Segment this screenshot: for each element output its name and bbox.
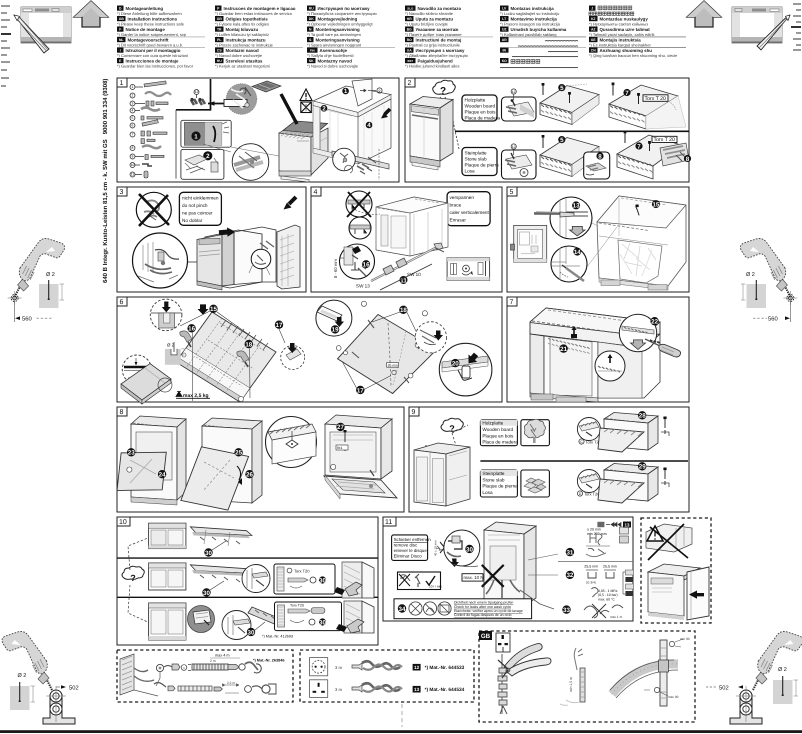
svg-text:No doblar: No doblar xyxy=(182,218,203,223)
svg-text:32: 32 xyxy=(566,572,573,579)
svg-text:Инструкция з монтажу: Инструкция з монтажу xyxy=(416,48,465,53)
svg-text:25: 25 xyxy=(235,450,242,457)
svg-text:NL: NL xyxy=(119,38,124,42)
svg-text:GB: GB xyxy=(481,633,491,640)
svg-text:Holzplatte: Holzplatte xyxy=(465,98,486,103)
svg-text:7: 7 xyxy=(637,143,641,150)
svg-text:I: I xyxy=(120,49,121,53)
svg-text:10: 10 xyxy=(119,519,127,526)
svg-text:6: 6 xyxy=(132,124,134,128)
svg-text:12: 12 xyxy=(512,145,516,149)
svg-text:Ø 2: Ø 2 xyxy=(167,343,175,348)
svg-text:Stone slab: Stone slab xyxy=(482,477,505,482)
svg-text:1: 1 xyxy=(194,133,198,140)
svg-text:15: 15 xyxy=(652,201,659,208)
svg-text:Enrasar: Enrasar xyxy=(450,218,467,223)
svg-text:max 90: max 90 xyxy=(668,695,679,699)
svg-text:502: 502 xyxy=(69,685,79,692)
svg-text:25,5 mm: 25,5 mm xyxy=(603,565,617,569)
svg-text:Montageanleitung: Montageanleitung xyxy=(126,6,164,11)
svg-text:*) Mat.-Nr. 412693: *) Mat.-Nr. 412693 xyxy=(262,635,293,639)
svg-text:RO: RO xyxy=(407,38,412,42)
svg-text:Szerelesi utasitas: Szerelesi utasitas xyxy=(226,58,263,63)
svg-text:12: 12 xyxy=(414,665,420,670)
svg-text:remove disc: remove disc xyxy=(394,542,418,547)
svg-text:3: 3 xyxy=(132,102,134,106)
svg-text:HR: HR xyxy=(407,17,412,21)
svg-text:max 4 m: max 4 m xyxy=(215,654,230,658)
svg-text:ne pas coincer: ne pas coincer xyxy=(182,211,213,216)
svg-text:Placa de madera: Placa de madera xyxy=(465,116,501,121)
svg-text:Montaj kilavuzu: Montaj kilavuzu xyxy=(226,27,259,32)
svg-text:18: 18 xyxy=(400,307,407,314)
svg-text:5: 5 xyxy=(510,189,514,196)
svg-text:640 B Integr. Kusto-Leisten 81: 640 B Integr. Kusto-Leisten 81,5 cm - k.… xyxy=(102,79,109,283)
svg-text:Plaque de pierre: Plaque de pierre xyxy=(482,484,517,489)
svg-text:30: 30 xyxy=(248,629,255,636)
svg-text:Montajis instruktsia: Montajis instruktsia xyxy=(600,37,642,42)
svg-text:13: 13 xyxy=(414,687,420,692)
svg-text:Montazny navod: Montazny navod xyxy=(318,58,353,63)
svg-text:*) Mat.-Nr. 263846: *) Mat.-Nr. 263846 xyxy=(253,658,284,662)
svg-text:Control de fugas despues de un: Control de fugas despues de un ciclo xyxy=(454,613,512,617)
svg-text:4: 4 xyxy=(314,189,318,196)
svg-text:SK: SK xyxy=(309,59,314,63)
svg-text:25,5 mm: 25,5 mm xyxy=(584,565,598,569)
svg-text:21: 21 xyxy=(560,346,567,353)
svg-text:F: F xyxy=(119,28,121,32)
svg-text:31: 31 xyxy=(566,549,573,556)
svg-text:Qurasdirma uzre talimat: Qurasdirma uzre talimat xyxy=(600,27,651,32)
svg-text:Torx T 20: Torx T 20 xyxy=(645,96,667,102)
svg-text:33: 33 xyxy=(563,607,570,614)
svg-text:30: 30 xyxy=(319,577,326,584)
svg-text:TR: TR xyxy=(217,28,222,32)
svg-text:40 x 10 mm: 40 x 10 mm xyxy=(434,540,438,556)
svg-text:*) Mat.-Nr. 644534: *) Mat.-Nr. 644534 xyxy=(425,687,465,693)
svg-text:SW 13: SW 13 xyxy=(356,284,370,289)
svg-text:RU: RU xyxy=(309,7,314,11)
svg-text:2,2 m: 2,2 m xyxy=(227,681,235,685)
svg-text:D: D xyxy=(579,492,582,496)
svg-text:Steinplatte: Steinplatte xyxy=(465,151,488,156)
svg-text:560: 560 xyxy=(768,315,778,322)
svg-text:Montazas instrukcija: Montazas instrukcija xyxy=(511,6,555,11)
svg-text:J: J xyxy=(591,7,593,11)
svg-text:max. 60 °C: max. 60 °C xyxy=(598,597,615,601)
svg-text:4: 4 xyxy=(132,109,134,113)
svg-text:2: 2 xyxy=(322,106,326,113)
svg-text:3: 3 xyxy=(120,189,124,196)
svg-text:15: 15 xyxy=(210,306,217,313)
svg-text:Monteringsanvisning: Monteringsanvisning xyxy=(316,27,360,32)
svg-text:Montagevoorschrift: Montagevoorschrift xyxy=(128,37,170,42)
svg-text:502: 502 xyxy=(719,685,729,692)
svg-text:(G 3/4): (G 3/4) xyxy=(586,581,596,585)
svg-text:8: 8 xyxy=(120,409,124,416)
svg-text:C: C xyxy=(580,440,583,444)
svg-text:caler verticalement: caler verticalement xyxy=(450,210,490,215)
svg-text:Ø 2: Ø 2 xyxy=(18,673,27,679)
svg-text:Instrucciones de montaje: Instrucciones de montaje xyxy=(126,58,180,63)
svg-text:8: 8 xyxy=(686,156,690,163)
svg-text:Montazdau nuskaulygy: Montazdau nuskaulygy xyxy=(600,16,649,21)
svg-text:KO: KO xyxy=(502,59,507,63)
svg-text:verspannen: verspannen xyxy=(450,195,475,200)
svg-text:IR: IR xyxy=(503,49,507,53)
svg-text:Notice de montage: Notice de montage xyxy=(126,27,166,32)
svg-text:12: 12 xyxy=(195,90,199,94)
svg-text:8 - 60 mm: 8 - 60 mm xyxy=(333,259,338,278)
svg-text:Torx T20: Torx T20 xyxy=(290,604,304,608)
svg-text:max 1 m: max 1 m xyxy=(610,615,623,619)
svg-text:PL: PL xyxy=(217,38,221,42)
svg-text:CN: CN xyxy=(591,49,596,53)
svg-text:1: 1 xyxy=(132,85,134,89)
svg-text:1: 1 xyxy=(344,88,348,95)
svg-text:11: 11 xyxy=(131,173,135,177)
svg-text:Указание за монтаж: Указание за монтаж xyxy=(416,27,460,32)
svg-text:Urnatish buyicha kullanma: Urnatish buyicha kullanma xyxy=(511,27,567,32)
svg-text:16: 16 xyxy=(188,326,195,333)
svg-text:3 m: 3 m xyxy=(335,665,342,670)
svg-text:17: 17 xyxy=(276,322,283,329)
svg-text:Plaque de pierre: Plaque de pierre xyxy=(465,163,500,168)
svg-text:*) Navod si dobre uschovajte: *) Navod si dobre uschovajte xyxy=(307,64,359,69)
svg-text:13: 13 xyxy=(625,522,630,527)
svg-text:GB: GB xyxy=(119,17,125,21)
svg-text:30: 30 xyxy=(319,619,326,626)
svg-text:UZ: UZ xyxy=(502,28,507,32)
svg-text:24: 24 xyxy=(159,472,166,479)
svg-text:9: 9 xyxy=(379,89,381,93)
svg-text:Schieber entfernen: Schieber entfernen xyxy=(394,537,432,542)
svg-text:Wooden board: Wooden board xyxy=(482,427,513,432)
svg-text:26: 26 xyxy=(246,472,253,479)
svg-text:3 m: 3 m xyxy=(335,687,342,692)
svg-text:30: 30 xyxy=(205,550,212,557)
svg-text:DK: DK xyxy=(309,17,314,21)
svg-text:8: 8 xyxy=(132,146,134,150)
svg-text:KZ: KZ xyxy=(591,17,596,21)
svg-text:Paigaldusjuhend: Paigaldusjuhend xyxy=(418,58,453,63)
svg-text:23: 23 xyxy=(128,450,135,457)
svg-text:35 mm: 35 mm xyxy=(388,363,399,367)
svg-text:Torx T 20: Torx T 20 xyxy=(654,137,676,143)
svg-text:Montagevejledning: Montagevejledning xyxy=(318,16,358,21)
svg-text:Instrukcja montazu: Instrukcja montazu xyxy=(226,37,266,42)
svg-text:min 30: min 30 xyxy=(680,637,690,641)
svg-text:29: 29 xyxy=(639,464,646,471)
svg-text:Eliminar Disco: Eliminar Disco xyxy=(394,553,423,558)
svg-text:UA: UA xyxy=(407,49,412,53)
svg-text:30: 30 xyxy=(466,546,473,553)
svg-text:*) Kullanmani yaxshilab saklan: *) Kullanmani yaxshilab saklang xyxy=(500,32,556,37)
svg-text:Holzplatte: Holzplatte xyxy=(482,421,503,426)
svg-text:Stone slab: Stone slab xyxy=(465,157,488,162)
svg-text:560: 560 xyxy=(22,315,32,322)
svg-text:Torx T20: Torx T20 xyxy=(294,569,310,574)
svg-text:Uputa za montazu: Uputa za montazu xyxy=(416,16,454,21)
svg-text:28: 28 xyxy=(639,413,646,420)
svg-text:10: 10 xyxy=(131,163,135,167)
svg-text:≥ 20 mm: ≥ 20 mm xyxy=(587,528,601,532)
svg-text:GE: GE xyxy=(591,38,597,42)
svg-text:Ø 2: Ø 2 xyxy=(746,272,755,278)
svg-text:*) Qing tuoshan baocun ben shu: *) Qing tuoshan baocun ben shuoming shu,… xyxy=(589,53,678,58)
svg-text:Odigies topothetisis: Odigies topothetisis xyxy=(226,16,269,21)
svg-text:FIN: FIN xyxy=(310,49,315,53)
svg-text:*) Hoidke juhend kindlasti all: *) Hoidke juhend kindlasti alles xyxy=(405,64,459,69)
svg-text:do not pinch: do not pinch xyxy=(182,203,208,208)
svg-text:22: 22 xyxy=(651,319,658,326)
svg-text:EST: EST xyxy=(407,59,413,63)
svg-text:Plaque en bois: Plaque en bois xyxy=(482,433,514,438)
svg-text:*) Guardar bien las instruccio: *) Guardar bien las instrucciones, por f… xyxy=(117,64,194,69)
svg-text:9: 9 xyxy=(412,409,416,416)
svg-text:12: 12 xyxy=(512,90,516,94)
svg-text:AR: AR xyxy=(502,38,507,42)
svg-text:2: 2 xyxy=(132,94,134,98)
svg-text:Instructiuni de montaj: Instructiuni de montaj xyxy=(416,37,462,42)
svg-text:2: 2 xyxy=(408,80,412,87)
svg-text:BG: BG xyxy=(407,28,412,32)
svg-text:2 m: 2 m xyxy=(210,659,216,663)
svg-text:*) Mat.-Nr. 644533: *) Mat.-Nr. 644533 xyxy=(425,665,465,671)
svg-text:nicht einklemmen: nicht einklemmen xyxy=(182,196,219,201)
svg-text:?: ? xyxy=(130,573,136,583)
svg-text:AZ: AZ xyxy=(591,28,596,32)
svg-text:HU: HU xyxy=(217,59,222,63)
svg-text:Ø 2: Ø 2 xyxy=(778,667,787,673)
svg-text:1: 1 xyxy=(120,80,124,87)
svg-text:5: 5 xyxy=(132,116,134,120)
svg-text:5: 5 xyxy=(560,85,564,92)
svg-text:8±1: 8±1 xyxy=(337,446,343,450)
svg-text:*) Kerjuk az utasitast megoriz: *) Kerjuk az utasitast megorizni xyxy=(215,64,270,69)
svg-text:Montavimo instrukcija: Montavimo instrukcija xyxy=(511,16,558,21)
svg-text:SLO: SLO xyxy=(407,7,414,11)
svg-text:7: 7 xyxy=(132,133,134,137)
svg-text:Wooden board: Wooden board xyxy=(465,104,496,109)
svg-text:27: 27 xyxy=(337,424,344,431)
svg-text:Monteringsanvisning: Monteringsanvisning xyxy=(316,37,360,42)
svg-text:7: 7 xyxy=(625,90,629,97)
svg-text:Инструкция по монтажу: Инструкция по монтажу xyxy=(318,6,371,11)
svg-text:17: 17 xyxy=(357,387,364,394)
svg-text:Instrucoes de montagem e ligac: Instrucoes de montagem e ligacao xyxy=(224,6,296,11)
svg-text:7: 7 xyxy=(510,299,514,306)
svg-text:10 l / min: 10 l / min xyxy=(429,585,442,589)
svg-text:14: 14 xyxy=(574,249,581,256)
svg-text:4: 4 xyxy=(367,122,371,129)
svg-text:34: 34 xyxy=(399,606,406,613)
svg-text:GR: GR xyxy=(217,17,223,21)
svg-text:Placa de madera: Placa de madera xyxy=(482,440,518,445)
svg-text:5: 5 xyxy=(560,137,564,144)
svg-text:20: 20 xyxy=(452,360,459,367)
svg-text:19: 19 xyxy=(332,327,339,334)
svg-text:8: 8 xyxy=(598,153,602,160)
svg-text:Istruzioni per il montaggio: Istruzioni per il montaggio xyxy=(126,48,181,53)
svg-text:18: 18 xyxy=(245,341,252,348)
svg-text:30: 30 xyxy=(203,590,210,597)
svg-text:Ø 2: Ø 2 xyxy=(46,272,55,278)
svg-text:Losa: Losa xyxy=(482,490,493,495)
svg-text:Asennusohje: Asennusohje xyxy=(320,48,348,53)
svg-text:13: 13 xyxy=(573,203,580,210)
svg-text:Installation instructions: Installation instructions xyxy=(128,16,178,21)
svg-text:9: 9 xyxy=(132,155,134,159)
svg-text:Plaque en bois: Plaque en bois xyxy=(465,110,497,115)
svg-text:Losa: Losa xyxy=(465,169,476,174)
svg-text:Montazni navod: Montazni navod xyxy=(226,48,259,53)
svg-text:Torx T20: Torx T20 xyxy=(584,491,600,496)
svg-text:Steinplatte: Steinplatte xyxy=(482,471,505,476)
svg-text:?: ? xyxy=(440,86,446,97)
svg-text:6: 6 xyxy=(120,299,124,306)
svg-text:Navodilo za montazo: Navodilo za montazo xyxy=(418,6,462,11)
svg-text:min 1,5 m: min 1,5 m xyxy=(569,677,573,692)
svg-text:brace: brace xyxy=(450,203,462,208)
svg-text:Anzhuang shuoming shu: Anzhuang shuoming shu xyxy=(600,48,653,53)
svg-text:CS: CS xyxy=(217,49,222,53)
svg-text:enlever le disque: enlever le disque xyxy=(394,548,428,553)
svg-text:11: 11 xyxy=(385,519,392,526)
